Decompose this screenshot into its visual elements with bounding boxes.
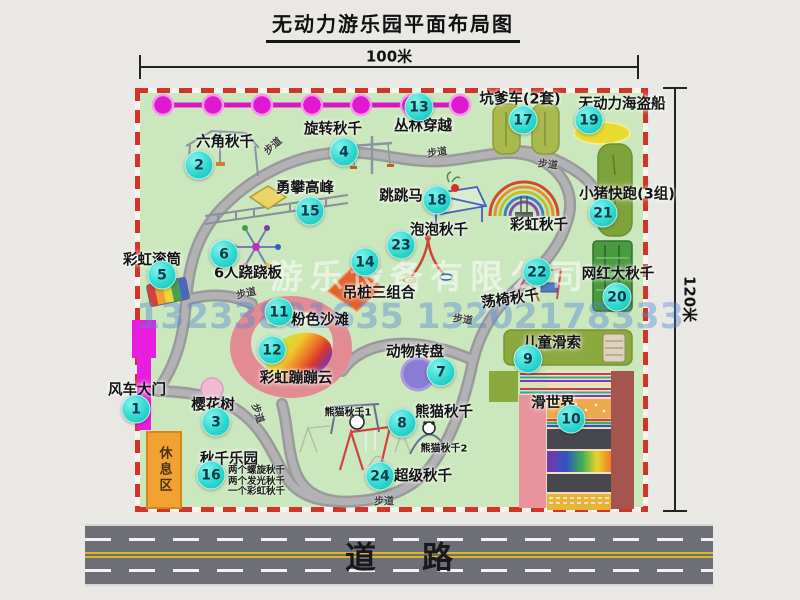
attraction-badge-1: 1 xyxy=(122,395,151,424)
attraction-badge-23: 23 xyxy=(387,231,416,260)
attraction-label-23: 泡泡秋千 xyxy=(410,219,468,240)
attraction-note-16: 两个螺旋秋千 xyxy=(228,466,285,477)
attraction-badge-7: 7 xyxy=(427,358,456,387)
attraction-badge-16: 16 xyxy=(197,461,226,490)
attraction-label-4: 旋转秋千 xyxy=(304,118,362,139)
page-title: 无动力游乐园平面布局图 xyxy=(266,8,520,43)
map-label: 熊猫秋千2 xyxy=(421,440,468,455)
watermark-phone: 13233801635 13202178333 xyxy=(136,297,684,337)
attraction-label-12: 彩虹蹦蹦云 xyxy=(260,367,333,388)
attraction-badge-13: 13 xyxy=(405,93,434,122)
attraction-label-18: 跳跳马 xyxy=(379,185,423,206)
walkway-label: 步道 xyxy=(374,493,394,508)
attraction-label-14: 吊桩三组合 xyxy=(343,282,416,303)
attraction-badge-15: 15 xyxy=(296,197,325,226)
attraction-label-2: 六角秋千 xyxy=(196,131,254,152)
dimension-width-label: 100米 xyxy=(366,46,412,67)
attraction-badge-12: 12 xyxy=(258,336,287,365)
attraction-badge-11: 11 xyxy=(265,298,294,327)
road-label: 道路 xyxy=(299,533,499,578)
walkway-label: 步道 xyxy=(452,309,474,327)
road-edge-line xyxy=(85,524,713,526)
park-border-bottom xyxy=(135,507,648,512)
attraction-label-11: 粉色沙滩 xyxy=(291,309,349,330)
attraction-badge-19: 19 xyxy=(575,106,604,135)
attraction-badge-10: 10 xyxy=(557,405,586,434)
attraction-badge-5: 5 xyxy=(148,261,177,290)
attraction-badge-18: 18 xyxy=(423,186,452,215)
attraction-badge-20: 20 xyxy=(603,283,632,312)
attraction-label-24: 超级秋千 xyxy=(394,465,452,486)
map-label: 彩虹秋千 xyxy=(510,214,568,235)
attraction-badge-24: 24 xyxy=(366,462,395,491)
road-edge-line xyxy=(85,584,713,586)
playground-layout-plan: 无动力游乐园平面布局图 100米 120米 xyxy=(0,0,800,600)
road: 道路 xyxy=(85,524,713,586)
dimension-height-label: 120米 xyxy=(680,276,701,322)
attraction-badge-2: 2 xyxy=(185,151,214,180)
attraction-label-15: 勇攀高峰 xyxy=(276,177,334,198)
attraction-note-16: 一个彩虹秋千 xyxy=(228,487,285,498)
attraction-badge-17: 17 xyxy=(509,106,538,135)
attraction-badge-9: 9 xyxy=(514,345,543,374)
attraction-label-20: 网红大秋千 xyxy=(582,263,655,284)
attraction-badge-8: 8 xyxy=(388,409,417,438)
rest-area: 休息区 xyxy=(146,431,182,509)
attraction-badge-21: 21 xyxy=(589,199,618,228)
attraction-badge-14: 14 xyxy=(351,248,380,277)
attraction-badge-3: 3 xyxy=(202,408,231,437)
walkway-label: 步道 xyxy=(537,154,558,171)
attraction-badge-22: 22 xyxy=(523,258,552,287)
park-border-top xyxy=(135,88,648,93)
attraction-label-8: 熊猫秋千 xyxy=(415,401,473,422)
attraction-badge-4: 4 xyxy=(330,138,359,167)
rest-area-label: 休息区 xyxy=(155,446,174,494)
attraction-badge-6: 6 xyxy=(210,240,239,269)
walkway-label: 步道 xyxy=(426,142,448,160)
map-label: 熊猫秋千1 xyxy=(325,404,372,419)
